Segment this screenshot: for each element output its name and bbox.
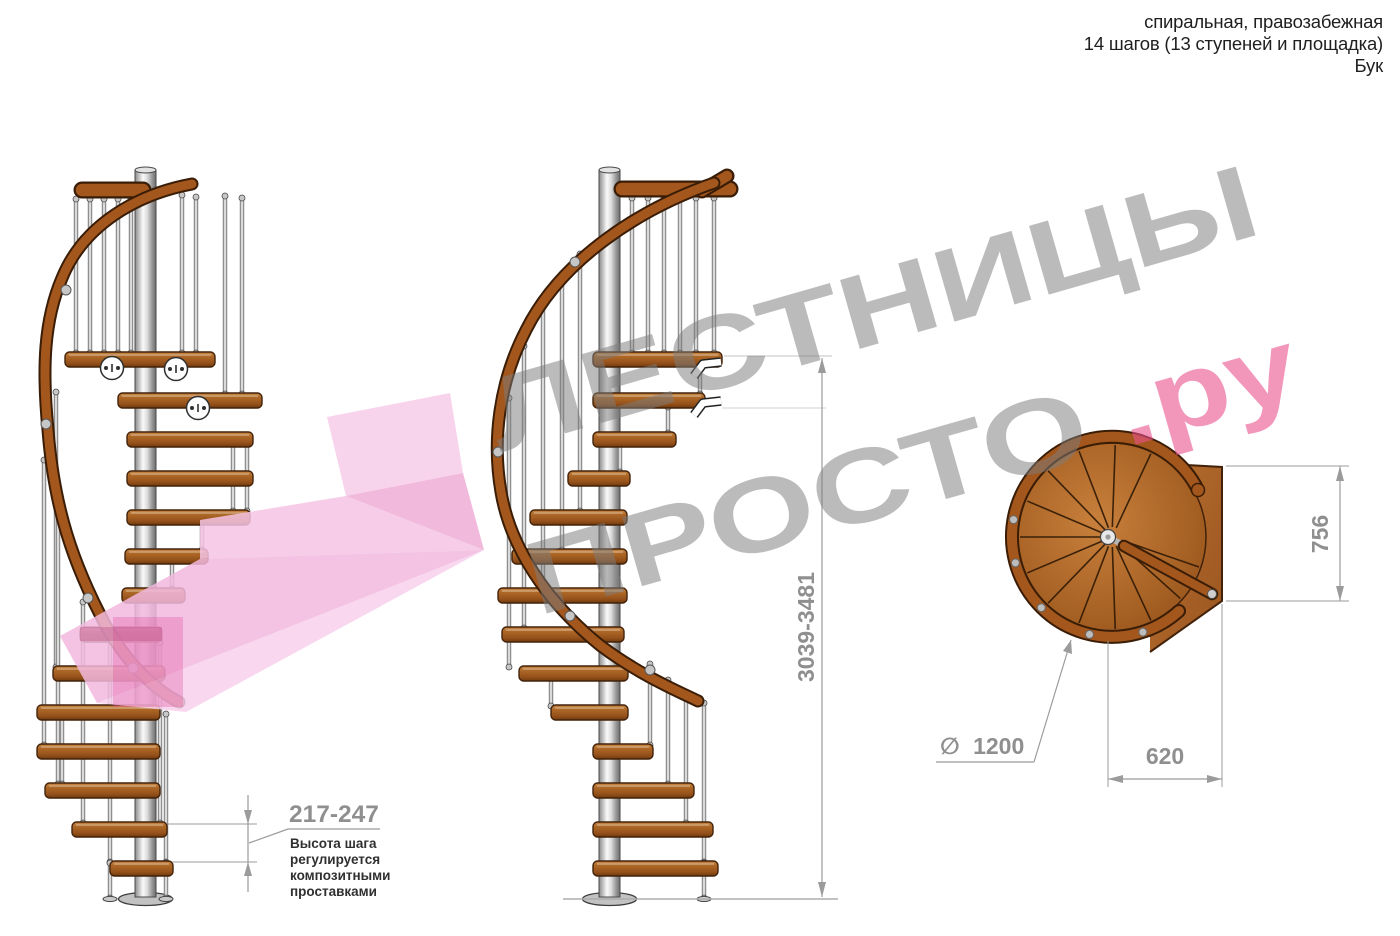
step-height-value: 217-247	[289, 801, 379, 828]
technical-drawing: 3039-3481 756 620 ∅ 1200	[0, 0, 1400, 936]
arrow-up-icon	[1336, 466, 1344, 481]
dimension-step-height: 217-247 Высота шага регулируется компози…	[168, 795, 390, 899]
staircase-drawing-sheet: 3039-3481 756 620 ∅ 1200	[0, 0, 1400, 936]
step-note-line3: композитными	[290, 868, 390, 883]
landing-width-value: 620	[1146, 743, 1184, 769]
arrow-right-icon	[1207, 775, 1222, 783]
handrail-end-cap	[1192, 484, 1205, 497]
step-note-line1: Высота шага	[290, 836, 377, 851]
title-steps: 14 шагов (13 ступеней и площадка)	[1084, 33, 1383, 55]
dimension-landing-depth: 756	[1226, 466, 1349, 601]
platform-rail-cap	[1208, 590, 1217, 599]
title-material: Бук	[1084, 55, 1383, 77]
landing-depth-value: 756	[1307, 515, 1333, 553]
step-note-line2: регулируется	[290, 852, 380, 867]
center-pole-knob-dot	[1105, 534, 1110, 539]
highlighted-tread	[80, 627, 162, 641]
total-height-value: 3039-3481	[793, 572, 819, 682]
dimension-diameter: ∅ 1200	[936, 640, 1072, 762]
title-block: спиральная, правозабежная 14 шагов (13 с…	[1084, 11, 1383, 77]
title-type: спиральная, правозабежная	[1084, 11, 1383, 33]
arrow-down-icon	[818, 882, 826, 897]
arrow-down-icon	[1336, 586, 1344, 601]
diameter-label: ∅ 1200	[940, 733, 1024, 760]
arrow-left-icon	[1108, 775, 1123, 783]
step-note-line4: проставками	[290, 884, 377, 899]
arrow-leader-icon	[1063, 640, 1072, 654]
arrow-up-icon	[244, 862, 252, 876]
highlight-arrow	[60, 393, 484, 712]
watermark-line2-pink: .ру	[1102, 307, 1312, 470]
arrow-down-icon	[244, 810, 252, 824]
